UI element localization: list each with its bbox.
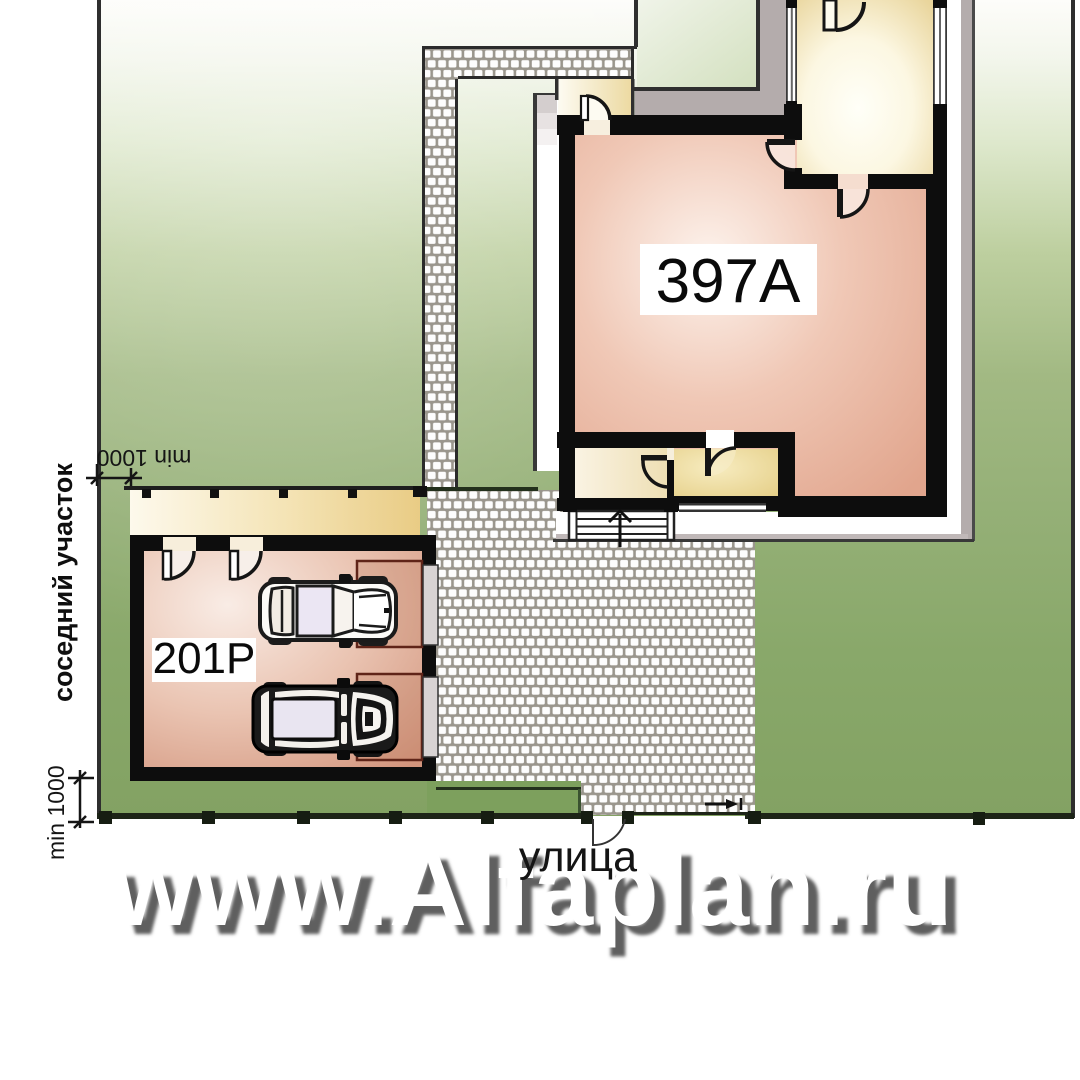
svg-text:min 1000: min 1000 — [97, 445, 192, 471]
svg-text:соседний участок: соседний участок — [48, 463, 78, 702]
svg-text:min 1000: min 1000 — [43, 765, 69, 860]
svg-text:улица: улица — [519, 833, 637, 881]
svg-text:201P: 201P — [153, 634, 256, 683]
svg-text:397A: 397A — [656, 247, 801, 316]
